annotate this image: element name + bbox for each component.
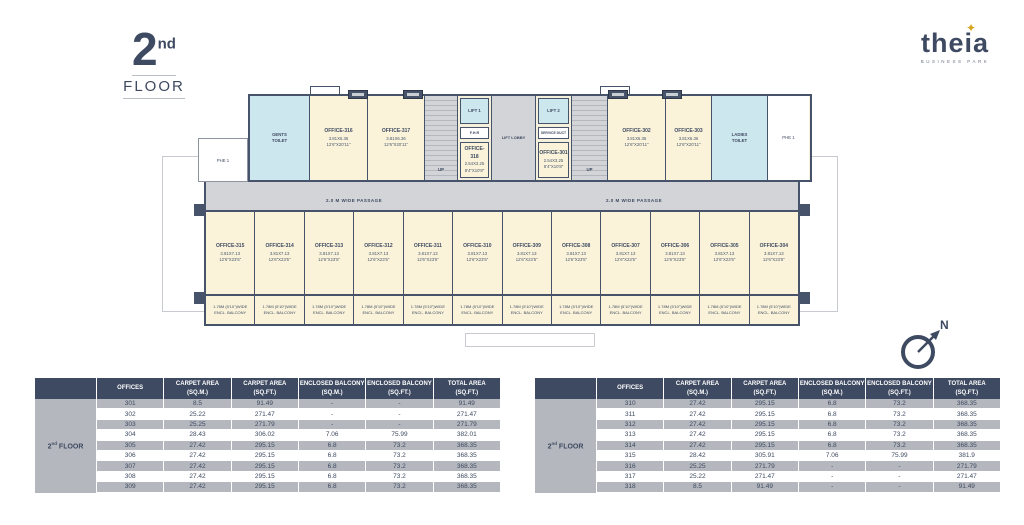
wall-pillar (798, 204, 810, 216)
office-302: OFFICE-302 3.81X6.36 12'6"X20'11" (608, 96, 666, 180)
office-room: OFFICE-312 3.81X7.13 12'6"X23'5" (354, 212, 403, 294)
lift1-column: LIFT 1 F.H.R OFFICE-318 2.54X3.25 8'4"X1… (458, 96, 492, 180)
office-318: OFFICE-318 2.54X3.25 8'4"X10'8" (460, 142, 489, 178)
floor-plan: GENTS TOILET OFFICE-316 3.81X6.36 12'6"X… (160, 80, 840, 348)
duct-box (662, 90, 682, 99)
office-room: OFFICE-309 3.81X7.13 12'6"X23'5" (503, 212, 552, 294)
table-rows: 310 27.42 295.15 6.8 73.2 368.35 311 27.… (597, 399, 1000, 493)
table-row: 302 25.22 271.47 - - 271.47 (97, 409, 500, 419)
table-row: 312 27.42 295.15 6.8 73.2 368.35 (597, 420, 1000, 430)
star-icon: ✦ (966, 21, 976, 35)
office-room: OFFICE-310 3.81X7.13 12'6"X23'5" (453, 212, 502, 294)
enclosed-balcony: 1.78M (5'10")WIDE ENCL. BALCONY (305, 296, 354, 324)
duct-box (403, 90, 423, 99)
enclosed-balcony: 1.78M (5'10")WIDE ENCL. BALCONY (255, 296, 304, 324)
phe-room-right: PHE 1 (768, 96, 809, 180)
office-303: OFFICE-303 3.81X6.36 12'6"X20'11" (666, 96, 712, 180)
table-row: 303 25.25 271.79 - - 271.79 (97, 420, 500, 430)
lift-1: LIFT 1 (460, 98, 489, 124)
area-table-right: OFFICES CARPET AREA (SQ.M.) CARPET AREA … (535, 378, 1000, 493)
office-301: OFFICE-301 2.54X3.25 8'4"X10'8" (538, 142, 569, 178)
column-header: CARPET AREA (SQ.FT.) (232, 378, 299, 399)
office-room: OFFICE-311 3.81X7.13 12'6"X23'5" (404, 212, 453, 294)
table-row: 306 27.42 295.15 6.8 73.2 368.35 (97, 451, 500, 461)
office-room: OFFICE-315 3.81X7.13 12'6"X23'5" (206, 212, 255, 294)
duct-box (348, 90, 368, 99)
lift-2: LIFT 2 (538, 98, 569, 124)
table-row: 311 27.42 295.15 6.8 73.2 368.35 (597, 409, 1000, 419)
enclosed-balcony: 1.78M (5'10")WIDE ENCL. BALCONY (503, 296, 552, 324)
table-row: 317 25.22 271.47 - - 271.47 (597, 472, 1000, 482)
column-header: CARPET AREA (SQ.M.) (164, 378, 231, 399)
phe-room-left: PHE 1 (198, 138, 248, 182)
table-row: 307 27.42 295.15 6.8 73.2 368.35 (97, 461, 500, 471)
brand-tagline: BUSINESS PARK (900, 59, 1010, 64)
office-317: OFFICE-317 3.81X6.36 12'6"X20'11" (368, 96, 425, 180)
top-room-block: GENTS TOILET OFFICE-316 3.81X6.36 12'6"X… (248, 94, 812, 182)
balcony-row: 1.78M (5'10")WIDE ENCL. BALCONY 1.78M (5… (204, 296, 800, 326)
column-header: OFFICES (597, 378, 664, 399)
table-row: 318 8.5 91.49 - - 91.49 (597, 482, 1000, 492)
fhr-box: F.H.R (460, 127, 489, 139)
enclosed-balcony: 1.78M (5'10")WIDE ENCL. BALCONY (552, 296, 601, 324)
table-corner (535, 378, 597, 399)
table-rows: 301 8.5 91.49 - - 91.49 302 25.22 271.47… (97, 399, 500, 493)
floor-label-cell: 2nd FLOOR (35, 399, 97, 493)
floor-number: 2nd (132, 26, 176, 76)
column-header: CARPET AREA (SQ.FT.) (732, 378, 799, 399)
wall-pillar (194, 292, 206, 304)
brand-logo: ✦ theia BUSINESS PARK (900, 30, 1010, 64)
table-row: 310 27.42 295.15 6.8 73.2 368.35 (597, 399, 1000, 409)
staircase-left: UP (425, 96, 458, 180)
enclosed-balcony: 1.78M (5'10")WIDE ENCL. BALCONY (404, 296, 453, 324)
ladies-toilet: LADIES TOILET (712, 96, 768, 180)
enclosed-balcony: 1.78M (5'10")WIDE ENCL. BALCONY (206, 296, 255, 324)
enclosed-balcony: 1.78M (5'10")WIDE ENCL. BALCONY (453, 296, 502, 324)
table-row: 305 27.42 295.15 6.8 73.2 368.35 (97, 441, 500, 451)
office-316: OFFICE-316 3.81X6.36 12'6"X20'11" (310, 96, 368, 180)
table-row: 314 27.42 295.15 6.8 73.2 368.35 (597, 441, 1000, 451)
enclosed-balcony: 1.78M (5'10")WIDE ENCL. BALCONY (354, 296, 403, 324)
area-table-left: OFFICES CARPET AREA (SQ.M.) CARPET AREA … (35, 378, 500, 493)
office-room: OFFICE-313 3.81X7.13 12'6"X23'5" (305, 212, 354, 294)
wall-pillar (798, 292, 810, 304)
office-room: OFFICE-305 3.81X7.13 12'6"X23'5" (700, 212, 749, 294)
bottom-office-row: OFFICE-315 3.81X7.13 12'6"X23'5" OFFICE-… (204, 210, 800, 296)
table-headers: OFFICES CARPET AREA (SQ.M.) CARPET AREA … (97, 378, 500, 399)
column-header: TOTAL AREA (SQ.FT.) (434, 378, 500, 399)
office-room: OFFICE-306 3.81X7.13 12'6"X23'5" (651, 212, 700, 294)
table-row: 316 25.25 271.79 - - 271.79 (597, 461, 1000, 471)
column-header: ENCLOSED BALCONY (SQ.M.) (799, 378, 866, 399)
wall-pillar (194, 204, 206, 216)
column-header: ENCLOSED BALCONY (SQ.M.) (299, 378, 366, 399)
table-row: 301 8.5 91.49 - - 91.49 (97, 399, 500, 409)
enclosed-balcony: 1.78M (5'10")WIDE ENCL. BALCONY (700, 296, 749, 324)
column-header: CARPET AREA (SQ.M.) (664, 378, 731, 399)
office-room: OFFICE-308 3.81X7.13 12'6"X23'5" (552, 212, 601, 294)
table-row: 304 28.43 306.02 7.06 75.99 382.01 (97, 430, 500, 440)
lower-outline (465, 333, 595, 347)
lift-lobby: LIFT LOBBY (492, 96, 536, 180)
office-room: OFFICE-314 3.81X7.13 12'6"X23'5" (255, 212, 304, 294)
column-header: TOTAL AREA (SQ.FT.) (934, 378, 1000, 399)
duct-box (608, 90, 628, 99)
staircase-right: UP (572, 96, 608, 180)
table-row: 308 27.42 295.15 6.8 73.2 368.35 (97, 472, 500, 482)
floor-label-cell: 2nd FLOOR (535, 399, 597, 493)
passage: 2.0 M WIDE PASSAGE 2.0 M WIDE PASSAGE (204, 182, 800, 210)
north-label: N (940, 318, 949, 332)
office-room: OFFICE-304 3.81X7.13 12'6"X23'5" (750, 212, 798, 294)
office-room: OFFICE-307 3.81X7.13 12'6"X23'5" (601, 212, 650, 294)
table-corner (35, 378, 97, 399)
enclosed-balcony: 1.78M (5'10")WIDE ENCL. BALCONY (601, 296, 650, 324)
column-header: OFFICES (97, 378, 164, 399)
table-headers: OFFICES CARPET AREA (SQ.M.) CARPET AREA … (597, 378, 1000, 399)
column-header: ENCLOSED BALCONY (SQ.FT.) (866, 378, 933, 399)
service-duct: SERVICE DUCT (538, 127, 569, 139)
table-row: 313 27.42 295.15 6.8 73.2 368.35 (597, 430, 1000, 440)
enclosed-balcony: 1.78M (5'10")WIDE ENCL. BALCONY (750, 296, 798, 324)
enclosed-balcony: 1.78M (5'10")WIDE ENCL. BALCONY (651, 296, 700, 324)
gents-toilet: GENTS TOILET (250, 96, 310, 180)
lift2-column: LIFT 2 SERVICE DUCT OFFICE-301 2.54X3.25… (536, 96, 572, 180)
column-header: ENCLOSED BALCONY (SQ.FT.) (366, 378, 433, 399)
table-row: 309 27.42 295.15 6.8 73.2 368.35 (97, 482, 500, 492)
brand-name: theia (900, 30, 1010, 57)
table-row: 315 28.42 305.91 7.06 75.99 381.9 (597, 451, 1000, 461)
north-compass-icon: N (896, 318, 960, 374)
